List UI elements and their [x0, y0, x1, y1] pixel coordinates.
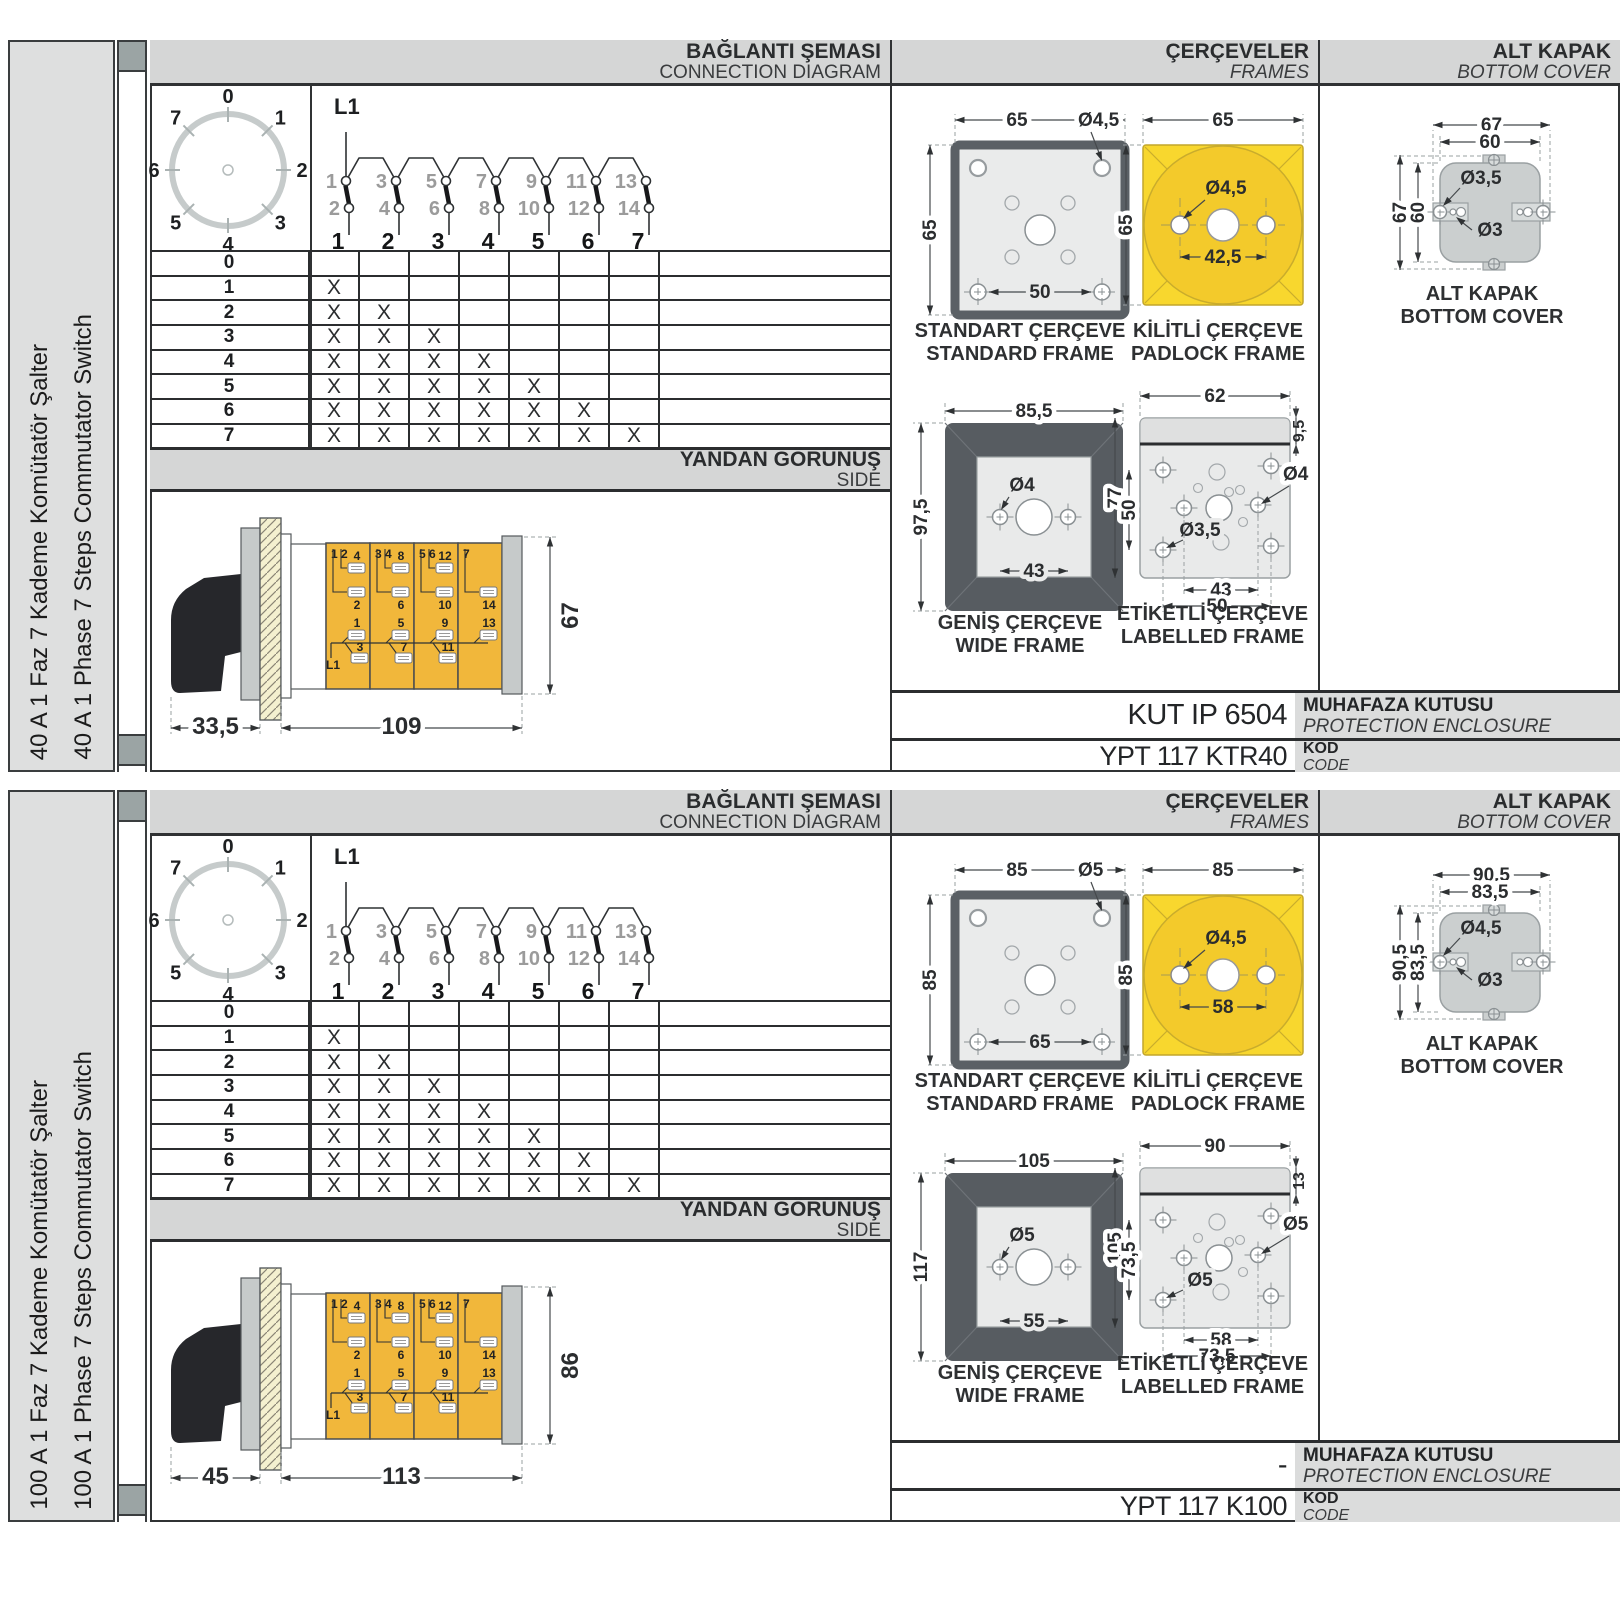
step-mark-cell: X — [310, 400, 360, 423]
dim-label: 85 — [1116, 964, 1137, 986]
module-header-label: 1 2 — [331, 547, 348, 561]
dim-label: 85 — [1212, 860, 1234, 881]
step-number: 6 — [150, 1150, 310, 1173]
step-table-row: 3XXX — [150, 1074, 890, 1099]
step-mark-cell — [360, 252, 410, 275]
step-filler-cell — [660, 1150, 890, 1173]
step-filler-cell — [660, 277, 890, 300]
caption-tr: GENİŞ ÇERÇEVE — [905, 612, 1135, 635]
header-frames-tr: ÇERÇEVELER — [1165, 41, 1309, 63]
hole-diameter-label: Ø5 — [1187, 1270, 1213, 1291]
terminal-number: 2 — [354, 598, 361, 612]
enclosure-row: -MUHAFAZA KUTUSUPROTECTION ENCLOSURE — [890, 1440, 1620, 1488]
header-frames-en: FRAMES — [1230, 813, 1309, 833]
labelled-frame-drawing: 901310573,5Ø5Ø55873,5 — [1105, 1130, 1320, 1365]
step-table-row: 0 — [150, 250, 890, 275]
contact-terminal-label: 14 — [618, 948, 641, 970]
hole-diameter-label: Ø4 — [1283, 464, 1309, 485]
contact-terminal-label: 7 — [476, 921, 487, 943]
code-label-tr: KOD — [1303, 1490, 1620, 1507]
header-cover-tr: ALT KAPAK — [1493, 791, 1611, 813]
step-mark-cell — [510, 301, 560, 324]
step-mark-cell: X — [410, 1175, 460, 1198]
hole-diameter-label: Ø4,5 — [1460, 918, 1502, 939]
side-view-en: SIDE — [837, 471, 881, 491]
terminal-number: 1 — [354, 616, 361, 630]
enclosure-label-en: PROTECTION ENCLOSURE — [1303, 716, 1620, 737]
step-mark-cell: X — [360, 425, 410, 448]
product-panel: 40 A 1 Faz 7 Kademe Komütatör Şalter40 A… — [0, 40, 1623, 772]
terminal-number: 9 — [442, 1366, 449, 1380]
step-mark-cell: X — [410, 1125, 460, 1148]
step-mark-cell — [610, 1002, 660, 1025]
rotary-dial-diagram: 01234567 — [150, 836, 310, 1000]
step-mark-cell — [460, 1002, 510, 1025]
dim-label: 50 — [1029, 282, 1050, 303]
section-header-frames: ÇERÇEVELERFRAMES — [890, 790, 1318, 836]
step-mark-cell — [610, 375, 660, 398]
caption-en: WIDE FRAME — [905, 635, 1135, 658]
dim-label: 83,5 — [1472, 882, 1509, 903]
step-mark-cell — [360, 1027, 410, 1050]
step-table-row: 5XXXXX — [150, 373, 890, 398]
step-mark-cell — [460, 252, 510, 275]
step-mark-cell — [460, 1051, 510, 1074]
dial-position-label: 0 — [222, 836, 233, 858]
side-label-turkish: 100 A 1 Faz 7 Kademe Komütatör Şalter — [26, 1080, 54, 1510]
contact-terminal-label: 4 — [379, 198, 391, 220]
step-mark-cell — [610, 1076, 660, 1099]
contact-terminal-label: 1 — [326, 171, 337, 193]
wide-frame-caption: GENİŞ ÇERÇEVEWIDE FRAME — [905, 612, 1135, 658]
caption-en: LABELLED FRAME — [1105, 1376, 1320, 1399]
side-label-column: 40 A 1 Faz 7 Kademe Komütatör Şalter40 A… — [8, 40, 115, 772]
dim-label: 90 — [1204, 1136, 1225, 1157]
step-mark-cell: X — [460, 425, 510, 448]
step-mark-cell — [410, 301, 460, 324]
terminal-number: 11 — [442, 640, 455, 654]
enclosure-label: MUHAFAZA KUTUSUPROTECTION ENCLOSURE — [1295, 1443, 1620, 1488]
standard-frame-caption: STANDART ÇERÇEVESTANDARD FRAME — [905, 320, 1135, 366]
hole-diameter-label: Ø3,5 — [1460, 168, 1502, 189]
step-mark-cell: X — [310, 425, 360, 448]
terminal-number: 7 — [401, 640, 408, 654]
step-table-row: 6XXXXXX — [150, 398, 890, 423]
step-mark-cell — [410, 1002, 460, 1025]
dial-position-label: 2 — [296, 910, 307, 932]
code-value: YPT 117 KTR40 — [890, 741, 1295, 772]
contact-terminal-label: 7 — [476, 171, 487, 193]
contact-terminal-label: 12 — [568, 948, 590, 970]
feed-line-label: L1 — [334, 844, 360, 869]
step-mark-cell: X — [360, 375, 410, 398]
step-mark-cell — [560, 1101, 610, 1124]
section-header-frames: ÇERÇEVELERFRAMES — [890, 40, 1318, 86]
side-view-en: SIDE — [837, 1221, 881, 1241]
terminal-number: 14 — [482, 1348, 496, 1362]
step-mark-cell — [560, 301, 610, 324]
binding-strip — [117, 790, 147, 1522]
terminal-number: 13 — [482, 616, 496, 630]
step-table-row: 4XXXX — [150, 1099, 890, 1124]
module-header-label: 1 2 — [331, 1297, 348, 1311]
step-number: 4 — [150, 351, 310, 374]
step-mark-cell: X — [310, 375, 360, 398]
step-mark-cell — [560, 351, 610, 374]
contact-terminal-label: 2 — [329, 198, 340, 220]
step-mark-cell: X — [610, 1175, 660, 1198]
front-depth-dimension: 45 — [202, 1463, 229, 1490]
switch-handle — [171, 1324, 241, 1443]
contact-terminal-label: 3 — [376, 921, 387, 943]
code-label: KODCODE — [1295, 741, 1620, 772]
step-mark-cell — [410, 1027, 460, 1050]
contact-terminal-label: 5 — [426, 921, 437, 943]
step-table-row: 7XXXXXXX — [150, 423, 890, 448]
module-header-label: 5 6 — [419, 547, 436, 561]
step-number: 0 — [150, 1002, 310, 1025]
divider-frames — [890, 40, 892, 772]
step-mark-cell: X — [410, 351, 460, 374]
padlock-frame-caption: KİLİTLİ ÇERÇEVEPADLOCK FRAME — [1118, 320, 1318, 366]
terminal-number: 13 — [482, 1366, 496, 1380]
feed-line-label: L1 — [334, 94, 360, 119]
step-number: 6 — [150, 400, 310, 423]
step-filler-cell — [660, 1101, 890, 1124]
dial-position-label: 6 — [148, 910, 159, 932]
hole-diameter-label: Ø5 — [1078, 860, 1104, 881]
wide-frame-drawing: Ø510511755 — [905, 1145, 1135, 1380]
bottom-cover-caption: ALT KAPAKBOTTOM COVER — [1350, 1033, 1614, 1079]
code-row: YPT 117 KTR40KODCODE — [890, 738, 1620, 772]
contact-terminal-label: 12 — [568, 198, 590, 220]
step-number: 0 — [150, 252, 310, 275]
step-table-row: 2XX — [150, 299, 890, 324]
step-number: 5 — [150, 375, 310, 398]
enclosure-label-tr: MUHAFAZA KUTUSU — [1303, 1445, 1620, 1466]
hole-diameter-label: Ø3,5 — [1179, 520, 1221, 541]
step-mark-cell: X — [310, 1125, 360, 1148]
dim-label: 65 — [920, 219, 941, 241]
side-label-turkish: 40 A 1 Faz 7 Kademe Komütatör Şalter — [26, 344, 54, 760]
step-filler-cell — [660, 351, 890, 374]
step-mark-cell: X — [460, 400, 510, 423]
step-mark-cell: X — [510, 375, 560, 398]
terminal-number: 3 — [357, 640, 364, 654]
dim-label: 55 — [1023, 1311, 1045, 1332]
step-mark-cell — [560, 1076, 610, 1099]
enclosure-label-tr: MUHAFAZA KUTUSU — [1303, 695, 1620, 716]
step-mark-cell: X — [360, 301, 410, 324]
step-mark-cell: X — [460, 1175, 510, 1198]
module-header-label: 7 — [463, 1297, 470, 1311]
contact-terminal-label: 9 — [526, 921, 537, 943]
caption-tr: GENİŞ ÇERÇEVE — [905, 1362, 1135, 1385]
step-number: 3 — [150, 326, 310, 349]
terminal-number: 9 — [442, 616, 449, 630]
terminal-number: 8 — [398, 549, 405, 563]
module-feed-label: L1 — [326, 1408, 340, 1422]
step-filler-cell — [660, 1175, 890, 1198]
caption-en: LABELLED FRAME — [1105, 626, 1320, 649]
wide-frame-caption: GENİŞ ÇERÇEVEWIDE FRAME — [905, 1362, 1135, 1408]
step-mark-cell — [310, 252, 360, 275]
step-mark-cell — [510, 1027, 560, 1050]
step-mark-cell — [560, 252, 610, 275]
step-mark-cell — [510, 1051, 560, 1074]
step-number: 1 — [150, 1027, 310, 1050]
side-view-tr: YANDAN GÖRÜNÜŞ — [680, 1199, 881, 1221]
step-number: 7 — [150, 425, 310, 448]
step-number: 4 — [150, 1101, 310, 1124]
strip-height-label: 13 — [1291, 1172, 1308, 1190]
side-view-drawing: L11 242133 486575 61210911714136733,5109 — [150, 492, 890, 772]
padlock-frame-caption: KİLİTLİ ÇERÇEVEPADLOCK FRAME — [1118, 1070, 1318, 1116]
terminal-number: 11 — [442, 1390, 455, 1404]
module-header-label: 7 — [463, 547, 470, 561]
side-view-drawing: L11 242133 486575 61210911714138645113 — [150, 1242, 890, 1522]
code-label-en: CODE — [1303, 757, 1620, 774]
step-mark-cell: X — [510, 425, 560, 448]
step-mark-cell: X — [460, 1150, 510, 1173]
step-table-row: 1X — [150, 275, 890, 300]
contact-diagram: L112134256378491051112613147 — [310, 836, 890, 1000]
step-mark-cell — [560, 1002, 610, 1025]
step-mark-cell — [460, 301, 510, 324]
dial-position-label: 5 — [170, 962, 181, 984]
enclosure-label: MUHAFAZA KUTUSUPROTECTION ENCLOSURE — [1295, 693, 1620, 738]
step-mark-cell: X — [560, 1150, 610, 1173]
step-mark-cell: X — [360, 351, 410, 374]
enclosure-label-en: PROTECTION ENCLOSURE — [1303, 1466, 1620, 1487]
step-mark-cell — [610, 301, 660, 324]
step-mark-cell — [410, 277, 460, 300]
enclosure-row: KUT IP 6504MUHAFAZA KUTUSUPROTECTION ENC… — [890, 690, 1620, 738]
step-number: 2 — [150, 1051, 310, 1074]
dim-label: 65 — [1212, 110, 1234, 131]
terminal-number: 14 — [482, 598, 496, 612]
front-depth-dimension: 33,5 — [192, 713, 239, 740]
enclosure-value: KUT IP 6504 — [890, 693, 1295, 738]
contact-diagram: L112134256378491051112613147 — [310, 86, 890, 250]
step-number: 1 — [150, 277, 310, 300]
step-table-row: 6XXXXXX — [150, 1148, 890, 1173]
dial-position-label: 3 — [275, 962, 286, 984]
step-table-row: 4XXXX — [150, 349, 890, 374]
header-cover-tr: ALT KAPAK — [1493, 41, 1611, 63]
strip-marker-top — [119, 40, 145, 72]
step-mark-cell — [510, 252, 560, 275]
dim-label: 58 — [1212, 997, 1233, 1018]
terminal-number: 3 — [357, 1390, 364, 1404]
step-mark-cell — [360, 1002, 410, 1025]
hole-diameter-label: Ø5 — [1283, 1214, 1309, 1235]
caption-tr: ETİKETLİ ÇERÇEVE — [1105, 1353, 1320, 1376]
step-mark-cell — [510, 277, 560, 300]
dim-label: 60 — [1479, 132, 1500, 153]
step-filler-cell — [660, 1125, 890, 1148]
caption-en: PADLOCK FRAME — [1118, 343, 1318, 366]
terminal-number: 10 — [438, 598, 452, 612]
step-mark-cell: X — [410, 1076, 460, 1099]
step-filler-cell — [660, 326, 890, 349]
step-mark-cell — [610, 1101, 660, 1124]
header-cover-en: BOTTOM COVER — [1457, 63, 1611, 83]
bottom-cover-caption: ALT KAPAKBOTTOM COVER — [1350, 283, 1614, 329]
step-filler-cell — [660, 400, 890, 423]
feed-zigzag-wire — [346, 132, 646, 181]
step-mark-cell: X — [410, 1101, 460, 1124]
caption-en: BOTTOM COVER — [1350, 1056, 1614, 1079]
step-mark-cell — [510, 326, 560, 349]
step-mark-cell: X — [410, 375, 460, 398]
caption-en: PADLOCK FRAME — [1118, 1093, 1318, 1116]
contact-terminal-label: 10 — [518, 198, 540, 220]
step-filler-cell — [660, 1002, 890, 1025]
step-mark-cell: X — [510, 400, 560, 423]
contact-terminal-label: 2 — [329, 948, 340, 970]
step-mark-cell: X — [360, 1150, 410, 1173]
hole-diameter-label: Ø4,5 — [1205, 928, 1247, 949]
step-mark-cell — [560, 375, 610, 398]
dial-position-label: 1 — [275, 108, 286, 130]
header-connection-en: CONNECTION DIAGRAM — [659, 63, 881, 83]
contact-terminal-label: 11 — [566, 921, 587, 943]
step-mark-cell: X — [360, 1125, 410, 1148]
step-mark-cell — [460, 277, 510, 300]
caption-tr: ETİKETLİ ÇERÇEVE — [1105, 603, 1320, 626]
dim-label: 85 — [920, 969, 941, 991]
step-filler-cell — [660, 1027, 890, 1050]
caption-en: BOTTOM COVER — [1350, 306, 1614, 329]
product-panel: 100 A 1 Faz 7 Kademe Komütatör Şalter100… — [0, 790, 1623, 1522]
terminal-number: 6 — [398, 1348, 405, 1362]
step-mark-cell — [410, 252, 460, 275]
header-connection-tr: BAĞLANTI ŞEMASI — [686, 41, 881, 63]
terminal-number: 5 — [398, 1366, 405, 1380]
step-mark-cell — [560, 277, 610, 300]
side-label-english: 100 A 1 Phase 7 Steps Commutator Switch — [70, 1051, 98, 1510]
dim-label: 62 — [1204, 386, 1225, 407]
contact-terminal-label: 8 — [479, 198, 490, 220]
header-frames-tr: ÇERÇEVELER — [1165, 791, 1309, 813]
step-mark-cell: X — [460, 375, 510, 398]
caption-tr: KİLİTLİ ÇERÇEVE — [1118, 1070, 1318, 1093]
step-filler-cell — [660, 425, 890, 448]
step-mark-cell — [610, 326, 660, 349]
terminal-number: 12 — [438, 1299, 452, 1313]
step-mark-cell: X — [310, 1101, 360, 1124]
dim-label: 65 — [1029, 1032, 1051, 1053]
caption-tr: STANDART ÇERÇEVE — [905, 320, 1135, 343]
step-filler-cell — [660, 301, 890, 324]
terminal-number: 6 — [398, 598, 405, 612]
step-mark-cell: X — [410, 1150, 460, 1173]
header-frames-en: FRAMES — [1230, 63, 1309, 83]
step-mark-cell — [610, 400, 660, 423]
step-mark-cell — [310, 1002, 360, 1025]
header-connection-tr: BAĞLANTI ŞEMASI — [686, 791, 881, 813]
step-mark-cell: X — [310, 301, 360, 324]
terminal-number: 10 — [438, 1348, 452, 1362]
caption-en: WIDE FRAME — [905, 1385, 1135, 1408]
labelled-frame-caption: ETİKETLİ ÇERÇEVELABELLED FRAME — [1105, 1353, 1320, 1399]
contact-terminal-label: 5 — [426, 171, 437, 193]
dim-label: 83,5 — [1408, 944, 1429, 981]
caption-en: STANDARD FRAME — [905, 1093, 1135, 1116]
terminal-number: 1 — [354, 1366, 361, 1380]
dial-position-label: 3 — [275, 212, 286, 234]
side-view-header: YANDAN GÖRÜNÜŞSIDE — [150, 447, 890, 492]
dial-position-label: 7 — [170, 858, 181, 880]
dial-position-label: 6 — [148, 160, 159, 182]
code-value: YPT 117 K100 — [890, 1491, 1295, 1522]
step-mark-cell: X — [560, 400, 610, 423]
dial-position-label: 7 — [170, 108, 181, 130]
section-header-cover: ALT KAPAKBOTTOM COVER — [1318, 40, 1620, 86]
feed-zigzag-wire — [346, 882, 646, 931]
step-mark-cell: X — [460, 1101, 510, 1124]
step-filler-cell — [660, 1051, 890, 1074]
step-mark-cell — [610, 351, 660, 374]
caption-en: STANDARD FRAME — [905, 343, 1135, 366]
body-length-dimension: 109 — [381, 713, 421, 740]
height-dimension: 86 — [557, 1352, 584, 1379]
terminal-number: 4 — [354, 549, 361, 563]
terminal-number: 7 — [401, 1390, 408, 1404]
section-header-connection: BAĞLANTI ŞEMASICONNECTION DIAGRAM — [150, 40, 890, 86]
step-mark-cell — [610, 1027, 660, 1050]
step-table-row: 0 — [150, 1000, 890, 1025]
step-mark-cell — [610, 277, 660, 300]
step-mark-cell — [560, 326, 610, 349]
step-number: 5 — [150, 1125, 310, 1148]
step-filler-cell — [660, 1076, 890, 1099]
step-mark-cell — [460, 1076, 510, 1099]
step-table-row: 2XX — [150, 1049, 890, 1074]
catalog-page: 40 A 1 Faz 7 Kademe Komütatör Şalter40 A… — [0, 0, 1623, 1623]
step-mark-cell: X — [360, 400, 410, 423]
dim-label: 42,5 — [1205, 247, 1242, 268]
caption-tr: ALT KAPAK — [1350, 283, 1614, 306]
dim-label: 43 — [1023, 561, 1044, 582]
code-row: YPT 117 K100KODCODE — [890, 1488, 1620, 1522]
dial-position-label: 5 — [170, 212, 181, 234]
dial-position-label: 2 — [296, 160, 307, 182]
step-mark-cell — [360, 277, 410, 300]
dim-label: 50 — [1119, 499, 1140, 520]
step-mark-cell: X — [510, 1150, 560, 1173]
contact-terminal-label: 13 — [615, 921, 637, 943]
contact-terminal-label: 13 — [615, 171, 637, 193]
caption-tr: ALT KAPAK — [1350, 1033, 1614, 1056]
step-table-row: 3XXX — [150, 324, 890, 349]
step-mark-cell: X — [560, 425, 610, 448]
step-table-row: 1X — [150, 1025, 890, 1050]
labelled-frame-caption: ETİKETLİ ÇERÇEVELABELLED FRAME — [1105, 603, 1320, 649]
dial-position-label: 0 — [222, 86, 233, 108]
step-mark-cell — [510, 1002, 560, 1025]
step-mark-cell: X — [360, 1175, 410, 1198]
step-mark-cell: X — [310, 326, 360, 349]
step-mark-cell: X — [310, 277, 360, 300]
dim-label: 105 — [1018, 1151, 1050, 1172]
section-header-cover: ALT KAPAKBOTTOM COVER — [1318, 790, 1620, 836]
step-mark-cell — [610, 1150, 660, 1173]
step-mark-cell: X — [510, 1125, 560, 1148]
step-mark-cell — [510, 351, 560, 374]
step-table-row: 7XXXXXXX — [150, 1173, 890, 1198]
